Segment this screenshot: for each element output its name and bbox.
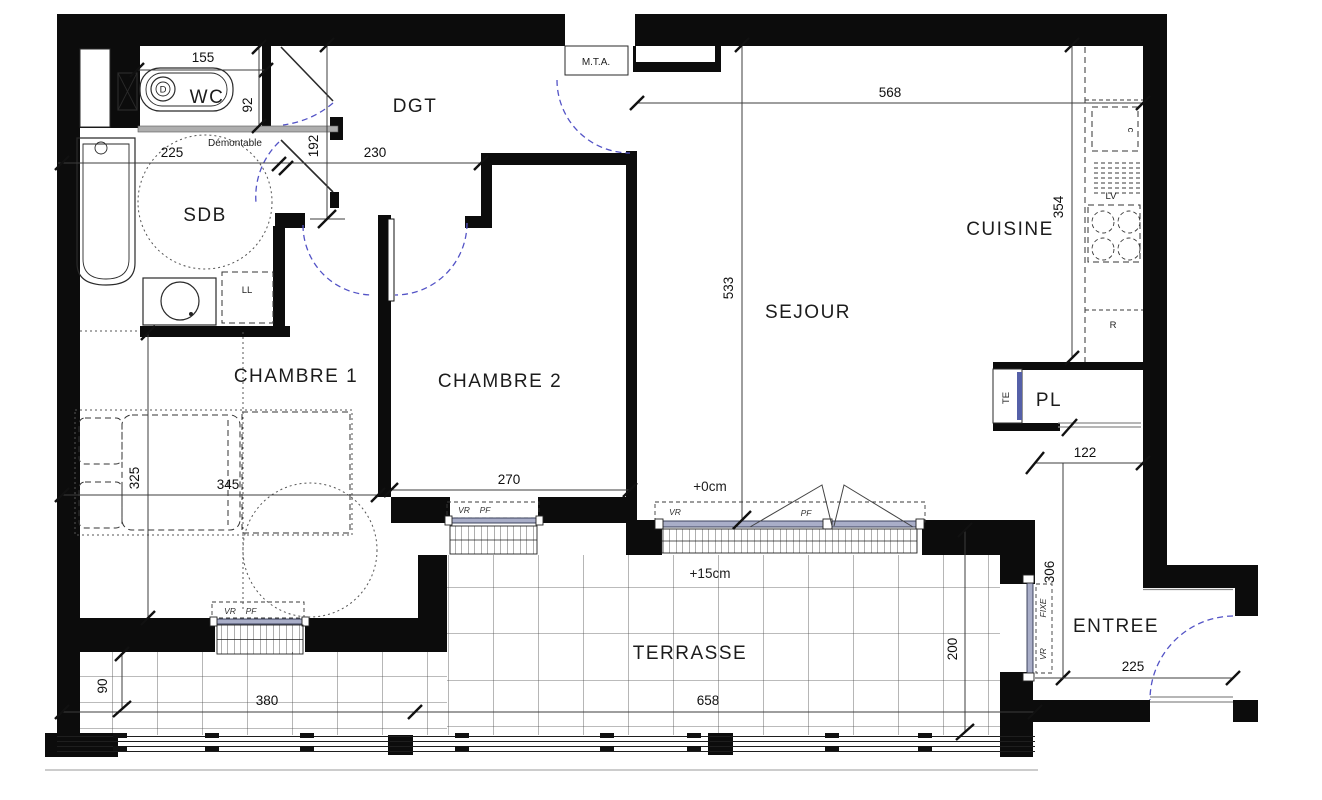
kitchen-counter (1085, 47, 1143, 362)
wall-segment (1233, 700, 1258, 722)
dim-sejour-depth: 533 (721, 277, 736, 300)
bathtub-inner (83, 144, 129, 279)
chambre1-turning-circle (243, 483, 377, 617)
window-jamb (445, 516, 452, 525)
entree-window (1023, 575, 1052, 681)
chambre1-door-swing-arc (303, 225, 373, 295)
dim-chambre2-width: 270 (498, 472, 521, 487)
te-label: TE (1001, 392, 1012, 404)
wall-segment (305, 618, 418, 652)
duct-recess (636, 46, 715, 62)
wall-segment (330, 192, 339, 208)
window-glazing (1027, 582, 1033, 674)
washbasin-bowl (161, 282, 199, 320)
room-label-chambre2: CHAMBRE 2 (438, 371, 562, 392)
ch2-window-vr: VR (458, 505, 470, 515)
toilet-mark: D (160, 85, 167, 96)
wc-door-leaf (281, 47, 333, 101)
washbasin-counter (143, 278, 216, 325)
dim-sejour-width: 568 (879, 85, 902, 100)
sdb-door-swing-arc (256, 142, 279, 203)
room-label-chambre1: CHAMBRE 1 (234, 366, 358, 387)
sejour-window (655, 485, 925, 553)
room-label-dgt: DGT (393, 96, 438, 117)
hob-burner (1118, 238, 1140, 260)
fridge-label: R (1110, 320, 1117, 331)
room-label-sejour: SEJOUR (765, 302, 851, 323)
window-glazing (450, 518, 538, 523)
ch2-window-pf: PF (480, 505, 492, 515)
demountable-wall (138, 126, 338, 132)
window-jamb (1023, 575, 1034, 583)
room-label-entree: ENTREE (1073, 616, 1159, 637)
door-leaf-open (388, 219, 394, 301)
wall-segment (273, 226, 285, 327)
nightstand (79, 482, 122, 528)
window-glazing (660, 521, 922, 527)
level-sejour: +0cm (693, 479, 726, 494)
wall-segment (275, 213, 305, 228)
floor-plan-page: D (0, 0, 1322, 800)
sejour-window-vr: VR (669, 507, 681, 517)
room-label-wc: WC (190, 87, 225, 108)
wall-segment (1143, 14, 1167, 565)
ch1-window-pf: PF (246, 606, 258, 616)
wall-segment (626, 151, 637, 520)
floor-plan-drawing: D (0, 0, 1322, 800)
wall-segment (993, 423, 1060, 431)
dishwasher-hatch (1094, 163, 1140, 193)
washbasin-drain (189, 312, 193, 316)
window-jamb (210, 617, 217, 626)
wc-door-swing-arc (283, 103, 333, 125)
window-head-box (655, 502, 925, 522)
hob-burner (1118, 211, 1140, 233)
wall-segment (140, 326, 290, 337)
room-label-pl: PL (1036, 390, 1062, 411)
wall-segment (391, 497, 450, 523)
wall-segment (57, 618, 215, 652)
washer-box (222, 272, 273, 323)
mta-door-swing-arc (557, 80, 630, 153)
wall-segment (538, 497, 632, 523)
window-jamb (536, 516, 543, 525)
wall-segment (465, 216, 487, 228)
sejour-window-pf: PF (801, 508, 813, 518)
room-label-sdb: SDB (183, 205, 227, 226)
wardrobe (242, 412, 350, 533)
dim-chambre1-width: 345 (217, 477, 240, 492)
dim-entree-depth: 306 (1042, 561, 1057, 584)
dim-terrasse-depth: 200 (945, 638, 960, 661)
dim-dgt-depth: 192 (306, 135, 321, 158)
dim-wc-depth: 92 (240, 97, 255, 112)
demontable-label: Démontable (208, 138, 262, 149)
sdb-turning-circle (138, 135, 272, 269)
room-label-terrasse: TERRASSE (633, 643, 747, 664)
dim-cuisine-depth: 354 (1051, 195, 1066, 218)
ch1-window-vr: VR (224, 606, 236, 616)
shaft-niche (80, 49, 110, 127)
window-jamb (916, 519, 924, 529)
dim-terrasse-width: 658 (697, 693, 720, 708)
sdb-fixtures (77, 135, 273, 331)
wall-segment (262, 46, 271, 128)
entree-window-vr: VR (1038, 648, 1048, 660)
te-door-strip (1017, 372, 1022, 420)
dishwasher-label: LV (1106, 191, 1118, 202)
wall-segment (481, 153, 635, 165)
wall-segment (1033, 700, 1150, 722)
wall-segment (1235, 588, 1258, 616)
hob-burner (1092, 211, 1114, 233)
entree-door-swing-arc (1150, 616, 1233, 700)
window-jamb (1023, 673, 1034, 681)
dim-sdb-width: 225 (161, 145, 184, 160)
dim-entree-width: 225 (1122, 659, 1145, 674)
demountable-partition (138, 126, 338, 132)
entree-window-fixe: FIXE (1038, 598, 1048, 617)
dim-dgt-width: 230 (364, 145, 387, 160)
dim-terrasse-left-width: 380 (256, 693, 279, 708)
mta-label: M.T.A. (582, 57, 610, 68)
wall-segment (922, 520, 1035, 555)
level-terrasse: +15cm (690, 566, 731, 581)
bathtub (77, 138, 135, 285)
dim-wc-width: 155 (192, 50, 215, 65)
terrasse-railing (45, 733, 1038, 770)
furniture-zone-outline (75, 410, 352, 535)
chambre2-door-swing-arc (395, 223, 467, 295)
washer-label: LL (242, 285, 253, 296)
room-label-cuisine: CUISINE (966, 219, 1054, 240)
dim-pl-recess: 122 (1074, 445, 1097, 460)
wall-segment (1143, 565, 1258, 588)
wall-segment (418, 555, 447, 652)
window-jamb (655, 519, 663, 529)
window-glazing (215, 619, 305, 624)
wall-segment (635, 14, 1167, 46)
dim-terrasse-left-depth: 90 (95, 678, 110, 693)
hob-burner (1092, 238, 1114, 260)
nightstand (79, 418, 122, 464)
dim-chambre1-depth: 325 (127, 467, 142, 490)
wall-segment (1000, 672, 1033, 757)
cooker-label: c (1125, 128, 1136, 133)
wall-segment (57, 14, 565, 46)
